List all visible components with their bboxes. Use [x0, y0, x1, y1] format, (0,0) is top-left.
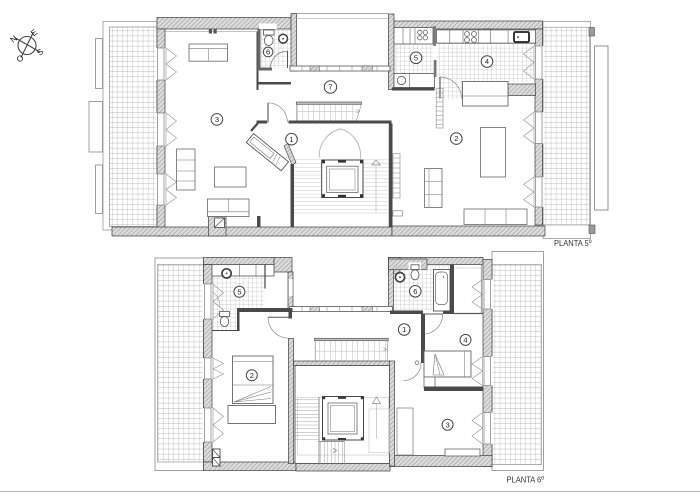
svg-text:2: 2	[250, 371, 254, 380]
svg-text:2: 2	[454, 134, 458, 143]
svg-text:4: 4	[485, 57, 489, 66]
svg-text:6: 6	[266, 47, 270, 56]
svg-text:PLANTA 5º: PLANTA 5º	[554, 238, 592, 248]
svg-text:5: 5	[414, 53, 418, 62]
svg-text:5: 5	[237, 287, 241, 296]
svg-text:1: 1	[402, 325, 406, 334]
svg-text:1: 1	[289, 135, 293, 144]
svg-text:6: 6	[413, 287, 417, 296]
svg-text:PLANTA 6º: PLANTA 6º	[507, 475, 545, 485]
svg-text:3: 3	[215, 115, 219, 124]
svg-text:4: 4	[463, 336, 467, 345]
svg-text:3: 3	[446, 420, 450, 429]
svg-text:7: 7	[328, 83, 332, 92]
